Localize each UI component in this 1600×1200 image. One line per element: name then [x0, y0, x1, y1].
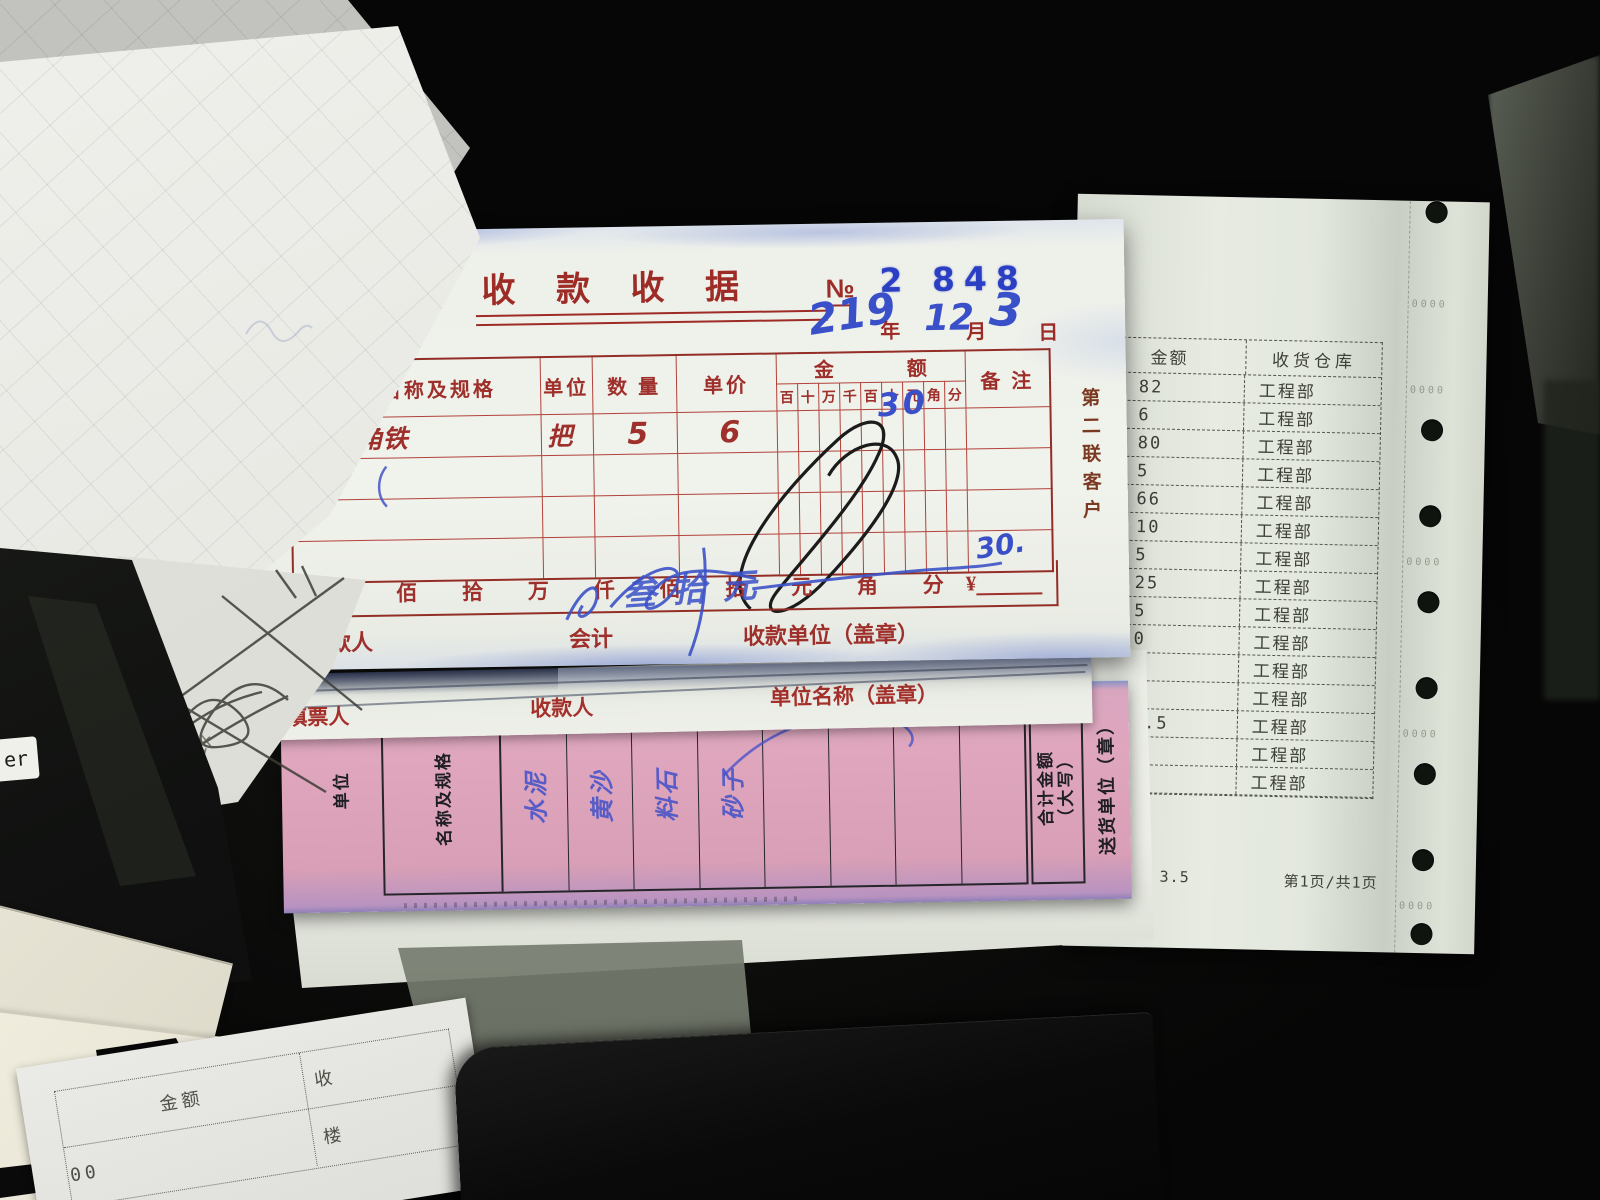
- edge-digits: 0000: [1412, 299, 1448, 311]
- sprocket-hole: [1410, 923, 1432, 945]
- row1-unit-handwritten: 把: [541, 414, 594, 456]
- col-amount-header: 金 额: [776, 351, 965, 384]
- sprocket-hole: [1412, 849, 1434, 871]
- perforation-line: [1394, 201, 1411, 953]
- printout-warehouse-cell: 工程部: [1238, 683, 1375, 713]
- printout-col-warehouse: 收货仓库: [1246, 340, 1382, 377]
- total-unit: 佰: [396, 577, 417, 607]
- total-unit: 万: [528, 575, 549, 605]
- col-unit-header: 单位: [540, 356, 593, 414]
- edge-digits: 0000: [1403, 729, 1439, 741]
- col-qty-header: 数 量: [592, 355, 677, 414]
- pink-total-label: 合计金额（大写）: [1036, 736, 1079, 841]
- printout-warehouse-cell: 工程部: [1242, 487, 1379, 517]
- printout-warehouse-cell: 工程部: [1239, 627, 1376, 657]
- receipt-title: 收 款 收 据: [481, 259, 755, 312]
- edge-digits: 0000: [1410, 385, 1446, 397]
- accountant-label: 会计: [569, 621, 614, 654]
- pink-item-handwritten: 料石: [647, 767, 683, 822]
- edge-digit-groups: 00000000000000000000: [1078, 194, 1490, 203]
- sprocket-hole: [1419, 505, 1441, 527]
- device-label: er: [0, 736, 40, 782]
- printout-warehouse-cell: 工程部: [1243, 431, 1380, 461]
- amount-digit-header: 千: [839, 383, 860, 410]
- pink-sender-label: 送货单位（章）: [1092, 715, 1120, 855]
- printout-warehouse-cell: 工程部: [1245, 375, 1382, 405]
- printout-warehouse-cell: 工程部: [1240, 599, 1377, 629]
- faint-pencil-mark: [238, 300, 318, 360]
- amount-digit-header: 百: [776, 384, 797, 411]
- edge-digits: 0000: [1406, 557, 1442, 569]
- printout-footer-value: 3.5: [1159, 868, 1189, 887]
- row1-qty-handwritten: 5: [593, 413, 678, 455]
- date-year-label: 年: [880, 315, 900, 344]
- unit-seal-label: 收款单位（盖章）: [743, 616, 919, 651]
- pink-item-handwritten: 黄沙: [582, 769, 618, 824]
- sprocket-hole: [1421, 419, 1443, 441]
- strip-payee-label: 收款人: [530, 692, 594, 723]
- printout-warehouse-cell: 工程部: [1238, 711, 1375, 741]
- printout-warehouse-cell: 工程部: [1236, 767, 1373, 797]
- total-unit: 拾: [462, 576, 483, 606]
- pink-item-handwritten: 水泥: [516, 770, 552, 825]
- printout-warehouse-cell: 工程部: [1242, 515, 1379, 545]
- printout-warehouse-cell: 工程部: [1239, 655, 1376, 685]
- fragment-table: 金额 收 00 楼: [54, 1029, 468, 1200]
- printout-warehouse-cell: 工程部: [1244, 403, 1381, 433]
- sprocket-hole: [1414, 763, 1436, 785]
- sprocket-hole: [1415, 677, 1437, 699]
- col-price-header: 单价: [676, 353, 777, 412]
- desk-scene: 金额 收货仓库 82 工程部 6 工程部 80: [0, 0, 1600, 1200]
- printout-page-label: 第1页/共1页: [1283, 870, 1378, 893]
- printout-warehouse-cell: 工程部: [1240, 571, 1377, 601]
- pink-name-spec-label: 名称及规格: [429, 751, 456, 846]
- copy-number-label: 第二联客户: [1075, 387, 1104, 527]
- device-label-text: er: [3, 746, 29, 772]
- sprocket-hole: [1417, 591, 1439, 613]
- date-month-label: 月: [966, 315, 986, 344]
- printout-warehouse-cell: 工程部: [1237, 739, 1374, 769]
- date-day-handwritten: 3: [988, 282, 1025, 339]
- desk-highlight-topright: [1488, 55, 1600, 435]
- col-note-header: 备 注: [965, 349, 1051, 408]
- strip-unit-label: 单位名称（盖章）: [770, 678, 939, 712]
- printout-header-row: 金额 收货仓库: [1093, 337, 1382, 378]
- sprocket-hole: [1425, 201, 1447, 223]
- printout-warehouse-cell: 工程部: [1241, 543, 1378, 573]
- amount-digit-header: 分: [944, 381, 965, 408]
- date-day-label: 日: [1038, 316, 1058, 345]
- amount-digit-header: 万: [818, 383, 839, 410]
- amount-digit-header: 十: [797, 383, 818, 410]
- desk-highlight-right: [1544, 380, 1600, 700]
- title-underline: [476, 310, 828, 327]
- printout-warehouse-cell: 工程部: [1243, 459, 1380, 489]
- edge-digits: 0000: [1399, 901, 1435, 913]
- blue-tick-mark: [370, 462, 395, 510]
